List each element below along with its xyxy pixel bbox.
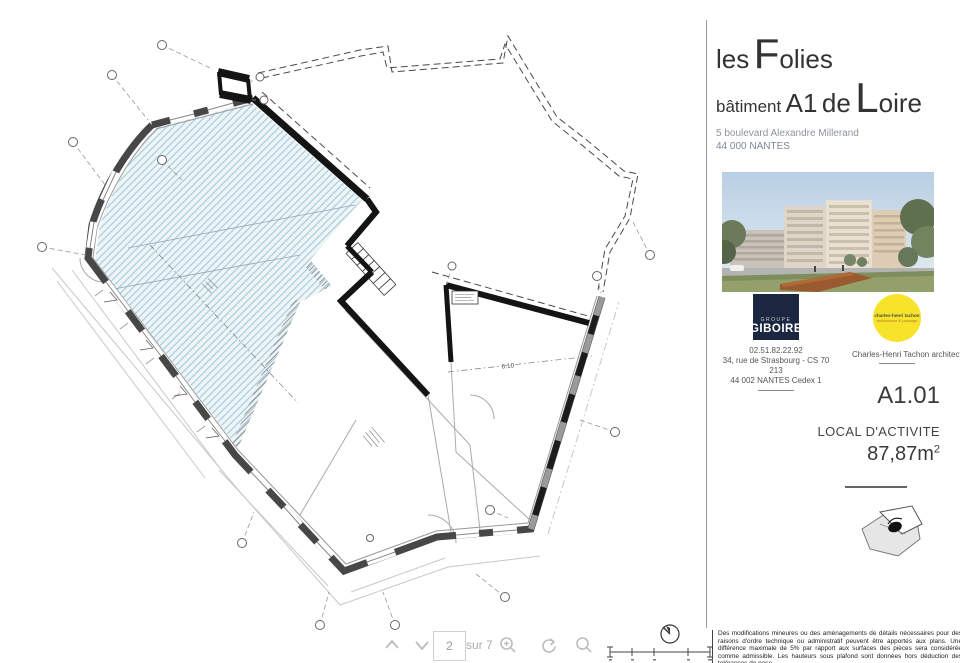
search-icon[interactable] (575, 636, 594, 655)
rotate-icon[interactable] (539, 636, 558, 655)
title-les: les (716, 44, 749, 74)
architect-block: charles-henri tachon architecture & pays… (852, 294, 942, 364)
key-plan-sketch (850, 494, 936, 558)
developer-address1: 34, rue de Strasbourg - CS 70 213 (716, 356, 836, 376)
dim-line-room2 (448, 356, 592, 372)
room-type-label: LOCAL D'ACTIVITE (770, 424, 940, 439)
north-compass (661, 625, 679, 643)
room-tag (452, 291, 478, 304)
right-facade (531, 297, 602, 529)
architect-logo: charles-henri tachon architecture & pays… (873, 294, 921, 342)
floor-plan-drawing: 6.10 (0, 0, 710, 630)
zoom-in-icon[interactable] (499, 636, 518, 655)
page-number-input[interactable] (433, 631, 466, 661)
developer-underline (758, 390, 794, 391)
developer-block: GROUPE GIBOIRE 02.51.82.22.92 34, rue de… (716, 294, 836, 391)
grid-bubbles (38, 41, 655, 630)
title-L: L (855, 74, 878, 121)
title-batiment: bâtiment (716, 97, 781, 116)
project-rendering-photo (722, 172, 934, 292)
architect-caption: Charles-Henri Tachon architecte (852, 350, 942, 359)
title-unit: A1 (786, 88, 818, 118)
project-address-line1: 5 boulevard Alexandre Millerand (716, 128, 952, 139)
pdf-page: 6.10 (0, 0, 960, 663)
dimension-label: 6.10 (501, 362, 515, 370)
project-title: les Folies bâtiment A1 de Loire 5 boulev… (716, 30, 952, 152)
title-F: F (754, 30, 780, 77)
page-count-label: sur 7 (466, 638, 493, 652)
scale-bar (606, 622, 718, 662)
plan-number: A1.01 (790, 382, 940, 410)
page-down-button[interactable] (413, 636, 431, 654)
project-address-line2: 44 000 NANTES (716, 141, 952, 152)
giboire-logo: GROUPE GIBOIRE (753, 294, 799, 340)
page-up-button[interactable] (383, 636, 401, 654)
architect-underline (879, 363, 915, 364)
disclaimer-text: Des modifications mineures ou des aménag… (712, 630, 960, 663)
developer-phone: 02.51.82.22.92 (716, 346, 836, 356)
keyplan-separator (845, 486, 907, 488)
titleblock-divider (706, 20, 707, 628)
area-value: 87,87m2 (770, 443, 940, 466)
